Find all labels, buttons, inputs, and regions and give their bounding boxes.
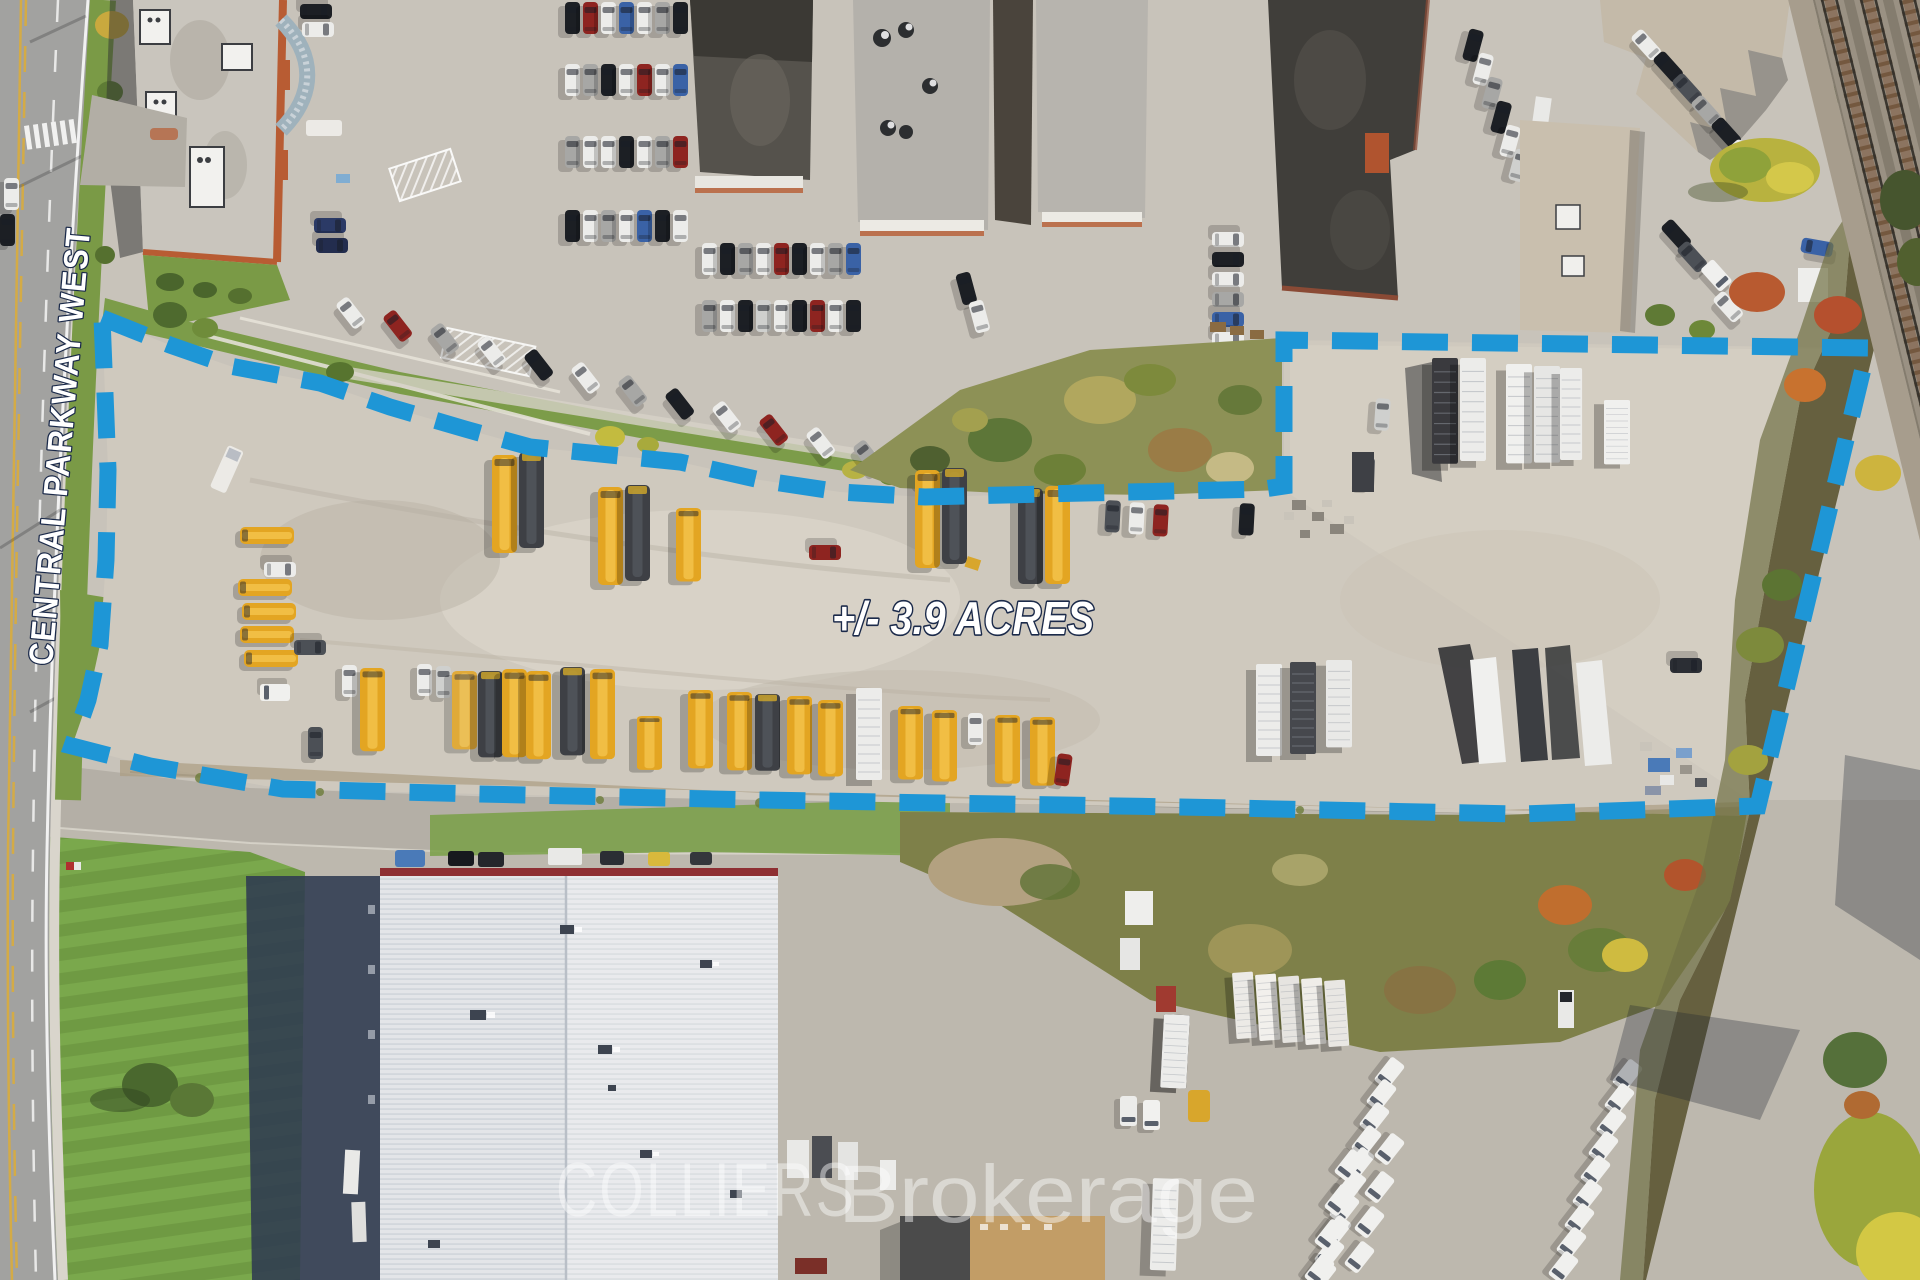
watermark-word: Brokerage bbox=[838, 1149, 1258, 1240]
aerial-photo-canvas: +/- 3.9 ACRES CENTRAL PARKWAY WEST COLLI… bbox=[0, 0, 1920, 1280]
area-label: +/- 3.9 ACRES bbox=[832, 592, 1094, 644]
watermark: COLLIERS Brokerage bbox=[556, 1148, 1258, 1240]
watermark-brand: COLLIERS bbox=[556, 1148, 856, 1233]
aerial-listing-photo: +/- 3.9 ACRES CENTRAL PARKWAY WEST COLLI… bbox=[0, 0, 1920, 1280]
vegetation-strip bbox=[850, 338, 1282, 495]
